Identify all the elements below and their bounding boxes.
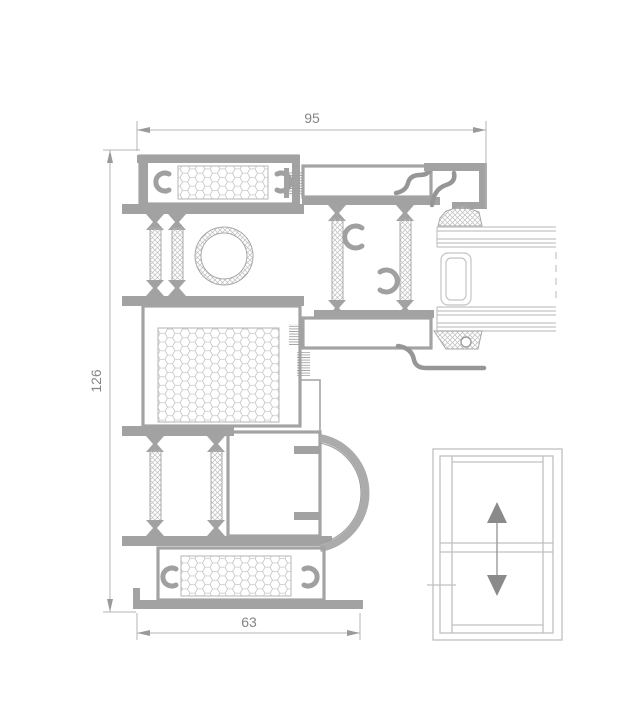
vertical-sliding-window-icon xyxy=(427,449,562,640)
screw-port-icon xyxy=(156,173,169,191)
insulation-honeycomb xyxy=(178,166,268,199)
glazing-gasket xyxy=(434,331,482,349)
window-profile-cross-section: 95 126 63 xyxy=(0,0,628,717)
fastener-icon xyxy=(461,337,471,347)
technical-drawing-page: 95 126 63 xyxy=(0,0,628,717)
left-jamb-upper xyxy=(122,214,304,306)
arrow-down-icon xyxy=(487,575,507,596)
outer-frame-head xyxy=(122,155,304,214)
profile-drawing xyxy=(122,155,556,609)
dimension-left-label: 126 xyxy=(88,369,104,393)
thermal-break-strut xyxy=(211,450,222,522)
brush-seal xyxy=(289,324,303,346)
sill-profile xyxy=(133,548,363,609)
insulation-honeycomb xyxy=(158,328,279,422)
thermal-break-strut xyxy=(172,228,183,282)
lower-centre-chamber xyxy=(228,432,365,548)
thermal-break-strut xyxy=(332,219,343,301)
frame-corner xyxy=(424,163,487,226)
dimension-bottom: 63 xyxy=(137,613,360,640)
arrow-up-icon xyxy=(487,502,507,523)
dimension-top-label: 95 xyxy=(304,110,320,126)
thermal-break-strut xyxy=(150,228,161,282)
latch-hook xyxy=(396,169,430,193)
brush-seal xyxy=(297,352,310,376)
sash-top-rail xyxy=(284,166,440,205)
screw-port-icon xyxy=(345,226,362,248)
screw-port-icon xyxy=(380,270,397,292)
glazing-unit xyxy=(434,227,556,349)
thermal-break-strut xyxy=(150,450,161,522)
round-tube-section xyxy=(195,227,253,285)
screw-port-icon xyxy=(304,568,317,586)
screw-port-icon xyxy=(163,568,176,586)
thermal-break-strut xyxy=(400,219,411,301)
insulation-honeycomb xyxy=(181,556,291,596)
brush-seal xyxy=(289,171,303,196)
dimension-bottom-label: 63 xyxy=(241,614,257,630)
